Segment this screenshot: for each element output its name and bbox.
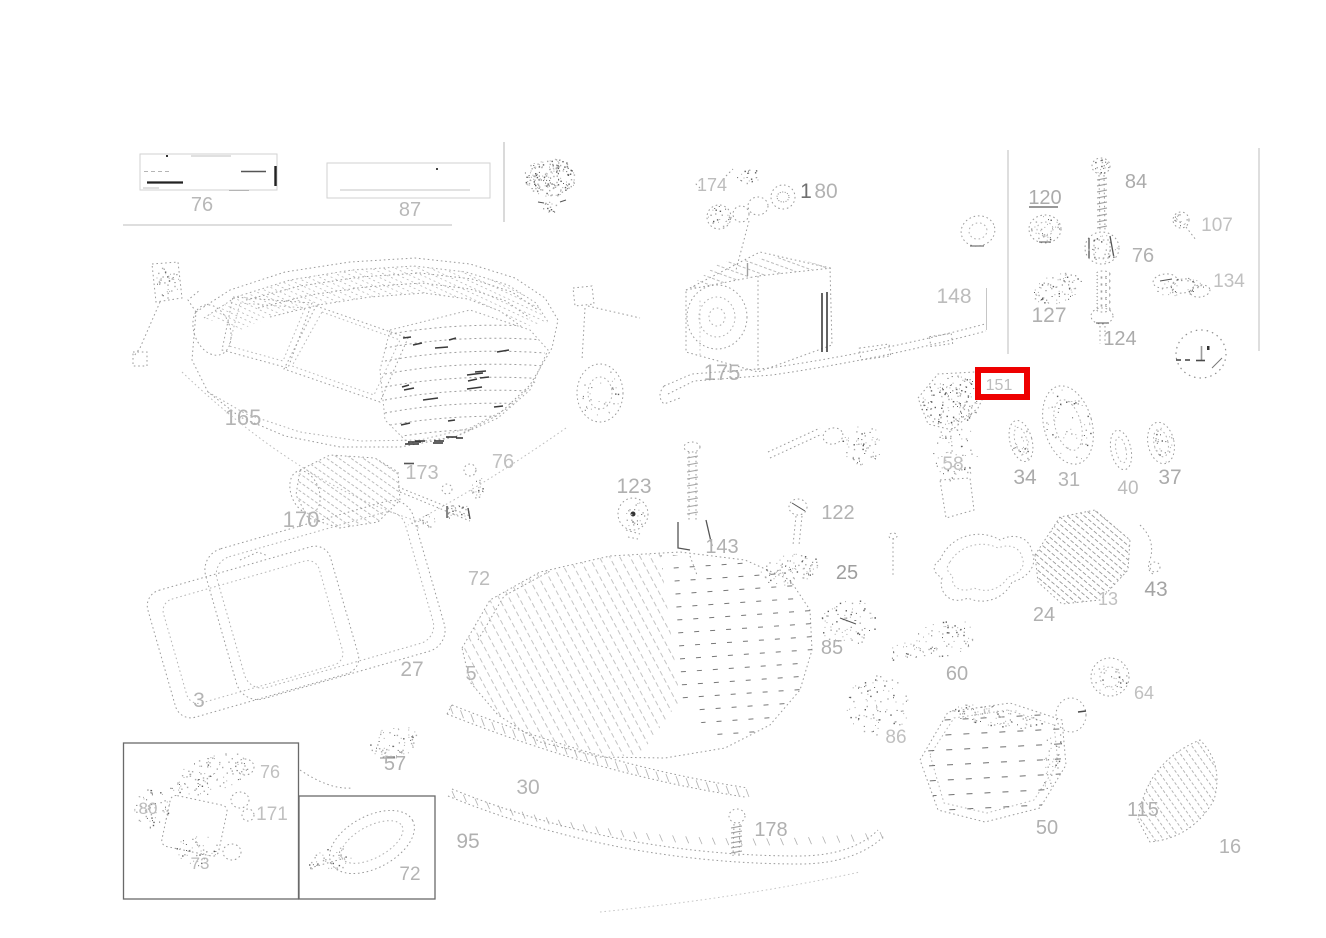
svg-text:13: 13 bbox=[1098, 589, 1118, 609]
svg-text:95: 95 bbox=[456, 830, 479, 853]
svg-text:58: 58 bbox=[942, 454, 963, 475]
svg-text:30: 30 bbox=[516, 776, 539, 799]
svg-text:120: 120 bbox=[1028, 187, 1061, 209]
svg-text:73: 73 bbox=[191, 854, 210, 873]
svg-text:60: 60 bbox=[946, 663, 968, 685]
svg-text:16: 16 bbox=[1219, 836, 1241, 858]
svg-text:173: 173 bbox=[405, 462, 438, 484]
svg-text:134: 134 bbox=[1213, 271, 1245, 292]
svg-text:3: 3 bbox=[193, 689, 205, 712]
svg-text:76: 76 bbox=[492, 451, 514, 473]
svg-text:24: 24 bbox=[1033, 604, 1055, 626]
svg-text:123: 123 bbox=[616, 475, 651, 498]
svg-text:76: 76 bbox=[260, 762, 280, 782]
svg-text:174: 174 bbox=[697, 175, 727, 195]
svg-text:57: 57 bbox=[384, 753, 406, 775]
svg-text:80: 80 bbox=[139, 799, 158, 818]
svg-text:37: 37 bbox=[1158, 466, 1181, 489]
svg-text:50: 50 bbox=[1036, 817, 1058, 839]
svg-text:40: 40 bbox=[1117, 478, 1138, 499]
svg-text:122: 122 bbox=[821, 502, 854, 524]
svg-text:107: 107 bbox=[1201, 215, 1233, 236]
svg-text:115: 115 bbox=[1127, 799, 1159, 821]
svg-text:80: 80 bbox=[814, 180, 837, 203]
svg-text:86: 86 bbox=[885, 727, 906, 748]
svg-text:72: 72 bbox=[399, 864, 420, 885]
svg-text:34: 34 bbox=[1013, 466, 1037, 489]
svg-text:143: 143 bbox=[705, 536, 738, 558]
svg-text:170: 170 bbox=[283, 507, 320, 532]
svg-text:5: 5 bbox=[465, 663, 476, 685]
svg-text:165: 165 bbox=[225, 405, 262, 430]
svg-text:25: 25 bbox=[836, 562, 858, 584]
svg-text:31: 31 bbox=[1058, 469, 1080, 491]
svg-text:1: 1 bbox=[800, 180, 812, 203]
svg-text:72: 72 bbox=[468, 568, 490, 590]
svg-text:127: 127 bbox=[1031, 304, 1066, 327]
svg-text:76: 76 bbox=[191, 194, 213, 216]
svg-text:84: 84 bbox=[1125, 171, 1147, 193]
svg-text:64: 64 bbox=[1134, 683, 1154, 703]
svg-text:175: 175 bbox=[704, 360, 741, 385]
svg-text:76: 76 bbox=[1132, 245, 1154, 267]
svg-text:43: 43 bbox=[1144, 578, 1167, 601]
svg-text:171: 171 bbox=[256, 804, 288, 825]
svg-text:85: 85 bbox=[821, 637, 843, 659]
svg-text:178: 178 bbox=[754, 819, 787, 841]
svg-text:148: 148 bbox=[936, 285, 971, 308]
svg-text:151: 151 bbox=[986, 377, 1013, 394]
svg-text:27: 27 bbox=[400, 658, 423, 681]
svg-text:87: 87 bbox=[399, 199, 421, 221]
svg-text:124: 124 bbox=[1103, 328, 1136, 350]
